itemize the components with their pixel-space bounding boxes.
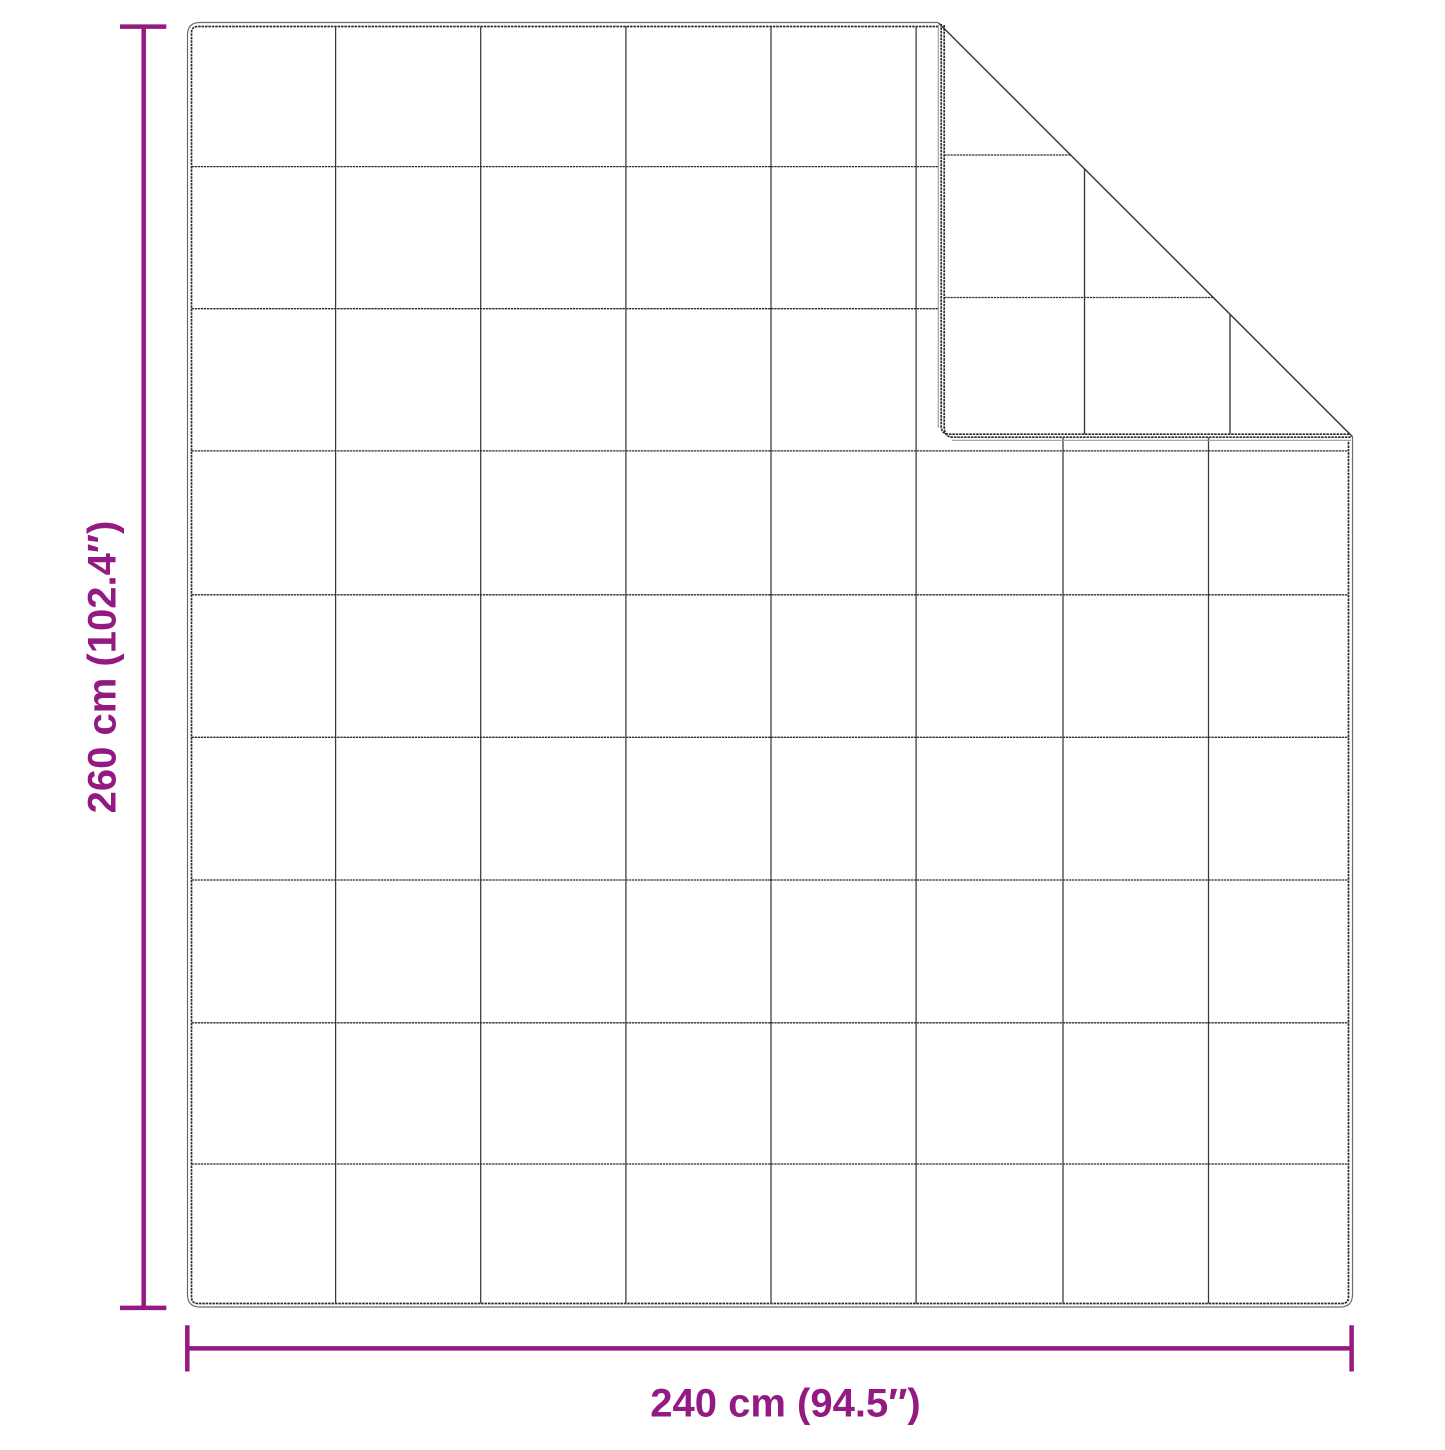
svg-text:240 cm (94.5″): 240 cm (94.5″) [650,1382,920,1426]
svg-text:260 cm (102.4″): 260 cm (102.4″) [81,521,125,814]
